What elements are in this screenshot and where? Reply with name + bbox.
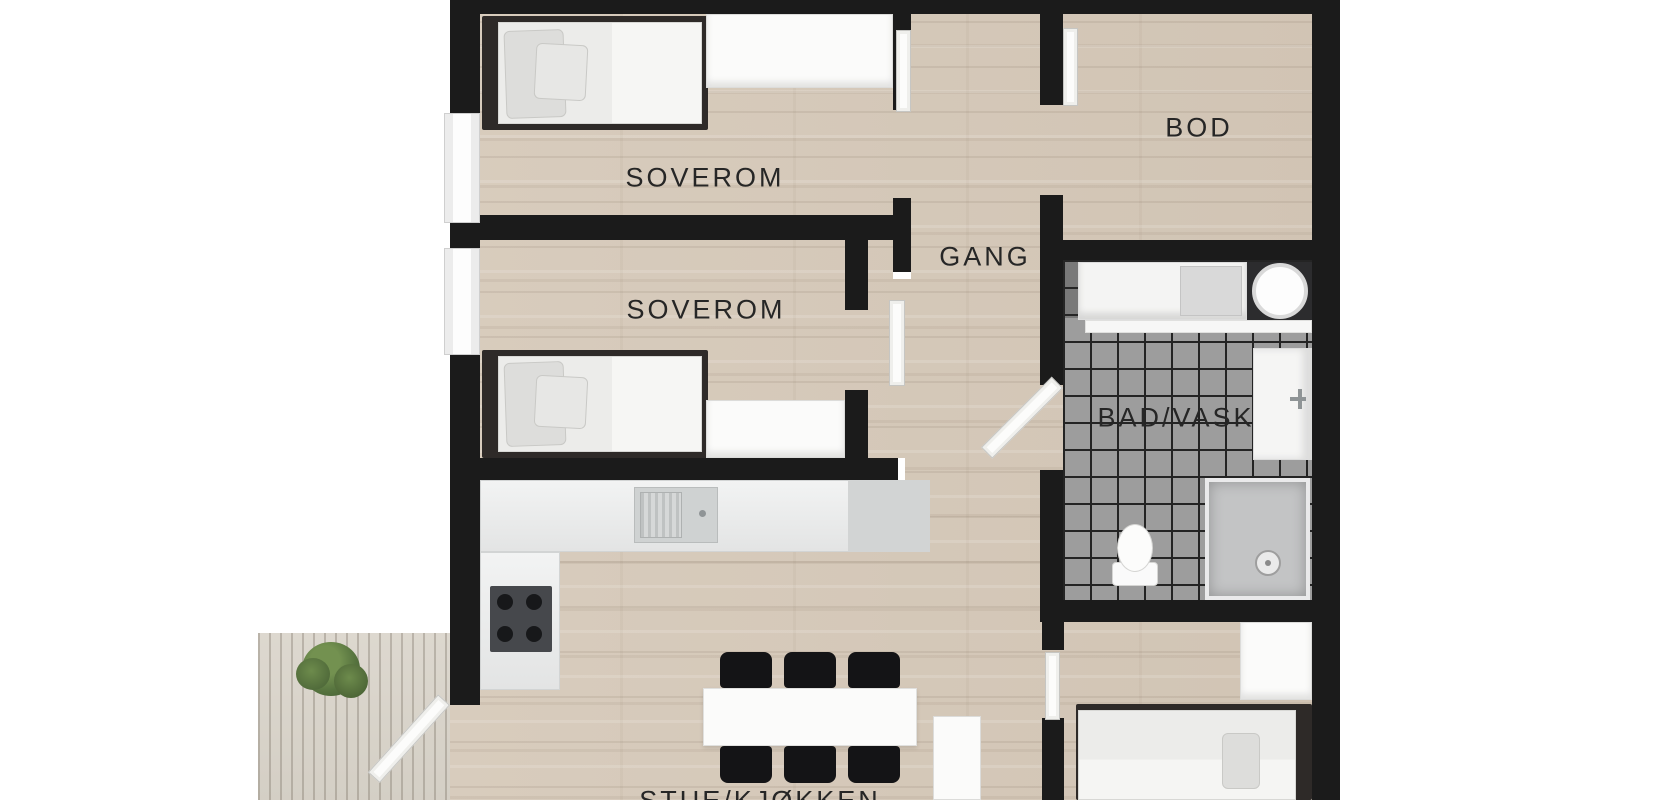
wall-left-lower bbox=[450, 355, 480, 705]
wall-bedroom2-right-lower bbox=[845, 390, 868, 458]
window-bedroom1-icon bbox=[444, 113, 480, 223]
door-bedroom1-icon bbox=[896, 30, 911, 112]
chair-icon bbox=[720, 746, 772, 783]
burner bbox=[497, 594, 513, 610]
bathroom-shelf bbox=[1085, 320, 1312, 333]
door-bedroom3-icon bbox=[1045, 652, 1060, 720]
under-counter-appliance bbox=[1180, 266, 1242, 316]
wall-bedroom3-left-lower bbox=[1042, 718, 1064, 800]
pillow-icon bbox=[534, 43, 589, 102]
wall-bathroom-left-lower bbox=[1040, 470, 1063, 600]
burner bbox=[526, 594, 542, 610]
door-storage-icon bbox=[1063, 28, 1078, 106]
room-label-bathroom: BAD/VASK bbox=[1097, 403, 1254, 434]
wall-bedroom2-bottom bbox=[450, 458, 905, 480]
room-label-bedroom1: SOVEROM bbox=[625, 163, 784, 194]
room-label-living-kitchen: STUE/KJØKKEN bbox=[639, 786, 881, 800]
closet-icon bbox=[706, 14, 893, 88]
faucet-icon bbox=[699, 510, 706, 517]
wall-bedroom1-right-lower bbox=[893, 198, 911, 272]
sink-icon bbox=[634, 487, 718, 543]
burner bbox=[526, 626, 542, 642]
pillow-icon bbox=[1222, 733, 1260, 789]
closet-icon bbox=[706, 400, 845, 458]
chair-icon bbox=[784, 652, 836, 688]
chair-icon bbox=[848, 746, 900, 783]
sideboard bbox=[933, 716, 981, 800]
wall-end-cap bbox=[898, 458, 905, 480]
floorplan-canvas: SOVEROM SOVEROM GANG BOD BAD/VASK STUE/K… bbox=[0, 0, 1670, 800]
wall-storage-bottom bbox=[1040, 240, 1340, 260]
shower-drain bbox=[1265, 560, 1271, 566]
room-label-hallway: GANG bbox=[939, 242, 1031, 273]
vanity-icon bbox=[1253, 348, 1312, 460]
window-bedroom2-icon bbox=[444, 248, 480, 355]
chair-icon bbox=[784, 746, 836, 783]
plant-icon bbox=[296, 634, 370, 706]
door-bedroom2-icon bbox=[889, 300, 905, 386]
cooktop-icon bbox=[490, 586, 552, 652]
bed-mattress bbox=[1078, 710, 1296, 800]
wall-top bbox=[450, 0, 1340, 14]
plant-foliage bbox=[296, 658, 330, 690]
wall-bathroom-left-upper bbox=[1040, 260, 1063, 385]
room-label-bedroom2: SOVEROM bbox=[626, 295, 785, 326]
pillow-icon bbox=[534, 375, 589, 430]
kitchen-appliance bbox=[848, 481, 929, 551]
shower-icon bbox=[1205, 478, 1310, 600]
chair-icon bbox=[720, 652, 772, 688]
toilet-icon bbox=[1117, 524, 1153, 572]
wall-bedroom3-left-upper bbox=[1042, 622, 1064, 650]
plant-foliage bbox=[334, 664, 368, 698]
wardrobe-icon bbox=[1240, 622, 1312, 700]
wall-right bbox=[1312, 0, 1340, 800]
sink-drainer bbox=[640, 492, 682, 538]
wall-bathroom-bottom bbox=[1040, 600, 1340, 622]
wall-storage-left-lower bbox=[1040, 195, 1063, 240]
wall-end-cap bbox=[893, 272, 911, 279]
room-label-storage: BOD bbox=[1165, 113, 1233, 144]
faucet-icon bbox=[1298, 389, 1302, 409]
chair-icon bbox=[848, 652, 900, 688]
wall-bedroom2-right-upper bbox=[845, 240, 868, 310]
wall-storage-left-upper bbox=[1040, 14, 1063, 105]
dining-table-icon bbox=[703, 688, 917, 746]
burner bbox=[497, 626, 513, 642]
washing-machine-icon bbox=[1252, 263, 1308, 319]
wall-left-upper bbox=[450, 0, 480, 113]
wall-bedroom-divider bbox=[450, 215, 911, 240]
